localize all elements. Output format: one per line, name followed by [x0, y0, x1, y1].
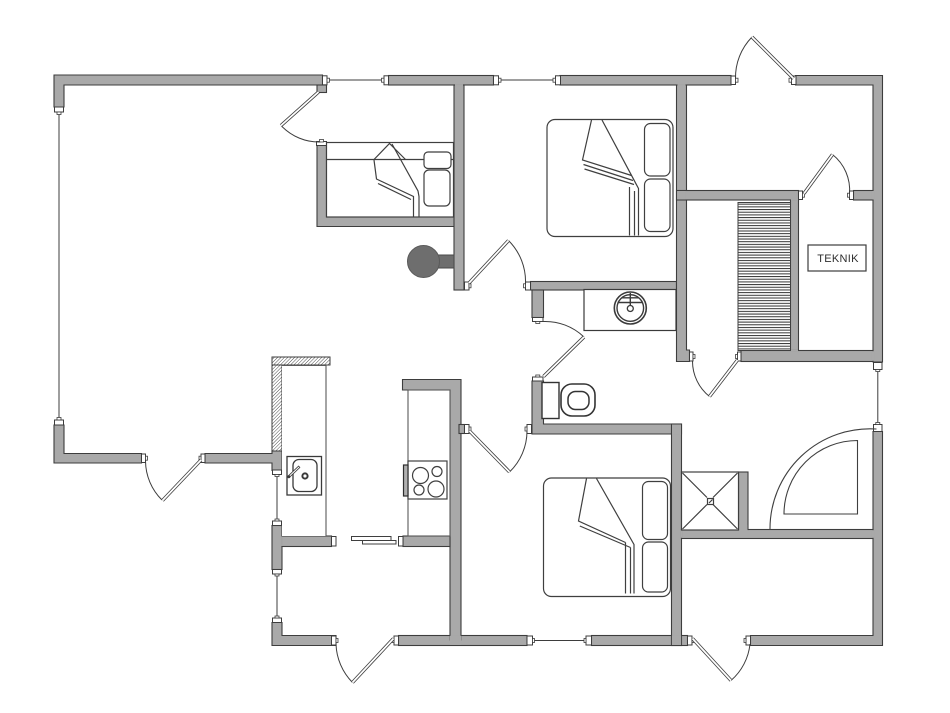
svg-text:TEKNIK: TEKNIK	[817, 253, 859, 265]
